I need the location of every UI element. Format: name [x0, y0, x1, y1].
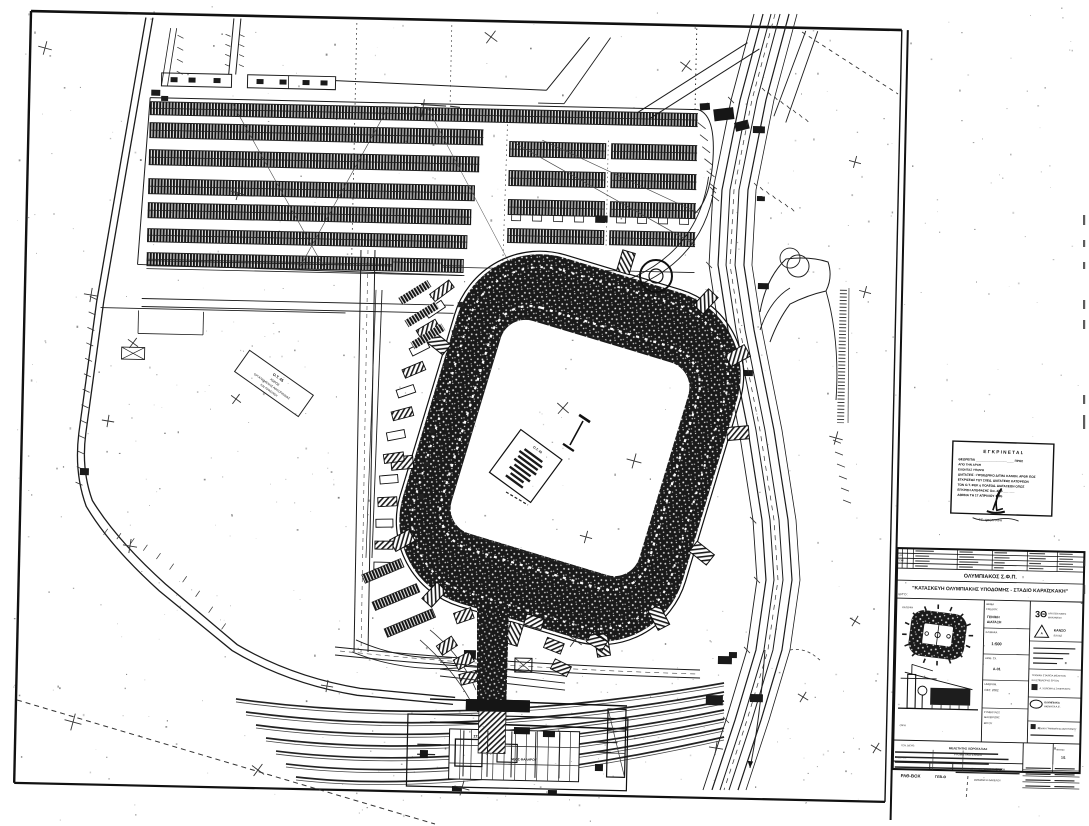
svg-text:ΕΛΛΑΣ: ΕΛΛΑΣ — [1054, 633, 1063, 637]
svg-text:1/1: 1/1 — [1061, 756, 1066, 760]
svg-text:ΕΧΟΝΤΑΣ ΥΠΟΨΗ: ΕΧΟΝΤΑΣ ΥΠΟΨΗ — [958, 467, 984, 472]
svg-text:ΚΛΙΜΑΚΑ: ΚΛΙΜΑΚΑ — [986, 630, 998, 634]
svg-text:ΝΕΟΣ ΦΑΛΗΡΟΥ: ΝΕΟΣ ΦΑΛΗΡΟΥ — [511, 757, 538, 762]
svg-text:ΓΕΝ. ΔΙΕΥΘ.: ΓΕΝ. ΔΙΕΥΘ. — [901, 744, 915, 747]
svg-text:3Θ: 3Θ — [1035, 609, 1047, 619]
svg-text:ΣΥΜΒΟΥΛΟΣ: ΣΥΜΒΟΥΛΟΣ — [984, 710, 1000, 714]
svg-text:ΚΑΝΣΟ: ΚΑΝΣΟ — [1054, 628, 1066, 632]
svg-text:ΕΡΓΟΥ: ΕΡΓΟΥ — [984, 721, 993, 725]
svg-text:ΓΕΒ-Θ: ΓΕΒ-Θ — [935, 775, 946, 779]
svg-text:ΩΡΙΜΑΝΣΗ ΦΑΚΕΛΟΥ: ΩΡΙΜΑΝΣΗ ΦΑΚΕΛΟΥ — [974, 778, 1001, 783]
svg-text:ΑΡΧΙΤΕΚΤΟΝΕΣ: ΑΡΧΙΤΕΚΤΟΝΕΣ — [1048, 612, 1067, 615]
svg-text:ΕΡΓΟ :: ΕΡΓΟ : — [898, 592, 908, 596]
svg-text:ΕΚΔ: ΕΚΔ — [899, 559, 904, 562]
svg-text:ΜΗΧΑΝΙΚΟΙ: ΜΗΧΑΝΙΚΟΙ — [1048, 616, 1062, 619]
svg-text:ΓΕΝΙΚΗ: ΓΕΝΙΚΗ — [987, 615, 1000, 619]
svg-text:ΡΛΘ-ΒΟΧ: ΡΛΘ-ΒΟΧ — [901, 773, 921, 778]
svg-text:ΣΧΕΔΙΟΥ:: ΣΧΕΔΙΟΥ: — [986, 607, 998, 611]
svg-text:ΟΛΥΜΠΙΑΚΟΣ Σ.Φ.Π.: ΟΛΥΜΠΙΑΚΟΣ Σ.Φ.Π. — [964, 574, 1018, 581]
svg-text:ΟΛΥΜΠΙΑΚΑ: ΟΛΥΜΠΙΑΚΑ — [1044, 700, 1060, 704]
svg-text:ΦΥΛΛΟ: ΦΥΛΛΟ — [1056, 749, 1064, 752]
svg-text:ΔΙΑΧΕΙΡΙΣΗΣ: ΔΙΑΧΕΙΡΙΣΗΣ — [984, 715, 1000, 719]
svg-text:ΑΠΟ ΤΗΝ ΑΡΧΗ: ΑΠΟ ΤΗΝ ΑΡΧΗ — [958, 462, 981, 467]
svg-text:ΑΡ.: ΑΡ. — [899, 554, 903, 557]
svg-text:Α-01: Α-01 — [993, 667, 1001, 671]
svg-text:1:500: 1:500 — [991, 641, 1002, 646]
svg-text:ΟΨΗ: ΟΨΗ — [900, 723, 906, 727]
svg-text:ΜΕΛΕΤΗΤΗΣ ΧΩΡΟΤΑΞΙΑΣ: ΜΕΛΕΤΗΤΗΣ ΧΩΡΟΤΑΞΙΑΣ — [949, 746, 988, 751]
svg-text:ΘΕΜΑ: ΘΕΜΑ — [986, 602, 994, 606]
svg-text:ΑΚΙΝΗΤΑ Α.Ε.: ΑΚΙΝΗΤΑ Α.Ε. — [1044, 704, 1061, 708]
svg-text:ΔΙΑΤΑΞΗ: ΔΙΑΤΑΞΗ — [987, 620, 1002, 624]
svg-text:ΑΡΙΘ. ΣΧ.: ΑΡΙΘ. ΣΧ. — [985, 656, 997, 660]
svg-text:ΗΜΕΡΟΜ.: ΗΜΕΡΟΜ. — [985, 682, 998, 686]
svg-text:ΚΑΤΟΨΗ: ΚΑΤΟΨΗ — [902, 605, 913, 609]
svg-text:ΟΚΤ. 2002: ΟΚΤ. 2002 — [984, 688, 999, 692]
svg-text:ΚΑΙ ΕΠΙΒΛΕΨΗΣ ΕΡΓΩΝ: ΚΑΙ ΕΠΙΒΛΕΨΗΣ ΕΡΓΩΝ — [1032, 679, 1060, 683]
